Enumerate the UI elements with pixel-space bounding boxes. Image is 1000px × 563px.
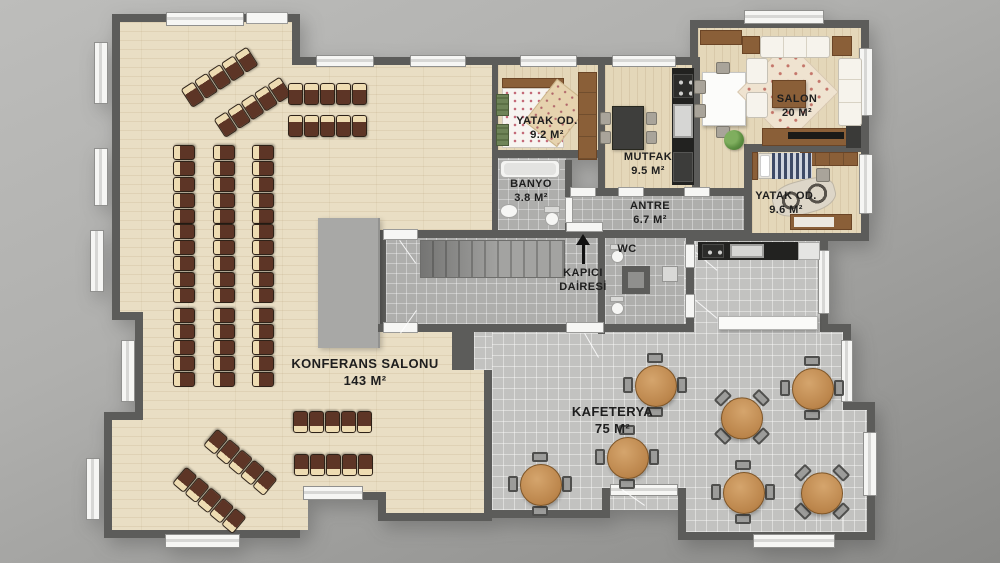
chair	[816, 168, 830, 182]
sideboard	[700, 30, 742, 45]
window	[121, 340, 135, 402]
conference-chair	[288, 115, 303, 137]
label-banyo: BANYO 3.8 M²	[489, 177, 573, 206]
window	[859, 154, 873, 214]
conference-chair	[173, 288, 195, 303]
conference-chair	[173, 177, 195, 192]
conference-chair	[293, 411, 308, 433]
conference-chair-row	[288, 115, 368, 137]
label-konferans: KONFERANS SALONU 143 M²	[285, 356, 445, 390]
cafeteria-table-top	[520, 464, 562, 506]
plant-icon	[724, 130, 744, 150]
cafeteria-chair	[677, 377, 687, 393]
conference-chair	[309, 411, 324, 433]
conference-chair	[173, 356, 195, 371]
conference-chair	[213, 340, 235, 355]
sink-icon	[730, 244, 764, 258]
room-area: 143 M²	[285, 373, 445, 390]
conference-chair	[213, 272, 235, 287]
conference-chair	[213, 356, 235, 371]
conference-stage	[318, 218, 380, 348]
window	[94, 42, 108, 104]
conference-chair	[173, 340, 195, 355]
conference-chair-row	[173, 307, 195, 387]
cafeteria-chair	[508, 476, 518, 492]
conference-chair-row	[173, 223, 195, 303]
door	[685, 294, 695, 318]
room-name: YATAK OD.	[497, 114, 597, 128]
conference-chair	[213, 177, 235, 192]
wall	[452, 332, 474, 370]
conference-chair	[252, 240, 274, 255]
kitchen-chair	[646, 131, 657, 144]
conference-chair	[173, 224, 195, 239]
label-kafeterya: KAFETERYA 75 M²	[540, 404, 685, 438]
conference-chair	[320, 83, 335, 105]
label-mutfak: MUTFAK 9.5 M²	[598, 150, 698, 179]
floor-plan-canvas: KONFERANS SALONU 143 M² KAFETERYA 75 M² …	[0, 0, 1000, 563]
cafeteria-chair	[834, 380, 844, 396]
room-area: 6.7 M²	[600, 213, 700, 227]
label-yatak-od-2: YATAK OD. 9.6 M²	[736, 189, 836, 218]
conference-chair	[252, 256, 274, 271]
nightstand	[496, 94, 509, 116]
room-area: 9.5 M²	[598, 164, 698, 178]
door	[246, 12, 288, 24]
wall	[843, 402, 875, 410]
conference-chair	[213, 224, 235, 239]
dining-chair	[694, 80, 706, 94]
conference-chair	[173, 145, 195, 160]
label-wc: WC	[607, 242, 647, 256]
cabinet	[846, 126, 861, 148]
window	[744, 10, 824, 24]
conference-chair	[173, 161, 195, 176]
cafeteria-chair	[804, 410, 820, 420]
conference-chair	[252, 308, 274, 323]
conference-chair	[213, 209, 235, 224]
conference-chair	[252, 372, 274, 387]
room-area: 3.8 M²	[489, 191, 573, 205]
label-salon: SALON 20 M²	[737, 92, 857, 121]
conference-chair	[252, 161, 274, 176]
conference-chair	[336, 83, 351, 105]
window	[90, 230, 104, 292]
label-yatak-od-1: YATAK OD. 9.2 M²	[497, 114, 597, 143]
room-name: KONFERANS SALONU	[285, 356, 445, 373]
conference-chair	[252, 224, 274, 239]
dresser-top	[794, 217, 834, 227]
cafeteria-table-top	[635, 365, 677, 407]
room-name: YATAK OD.	[736, 189, 836, 203]
cafeteria-chair	[562, 476, 572, 492]
conference-chair-row	[173, 144, 195, 224]
conference-chair	[352, 115, 367, 137]
conference-chair	[252, 288, 274, 303]
kitchen-chair	[600, 112, 611, 125]
cabinet	[798, 242, 820, 260]
room-name: KAPICI	[543, 266, 623, 280]
conference-chair	[213, 193, 235, 208]
conference-chair	[173, 256, 195, 271]
cafeteria-table	[711, 460, 775, 524]
conference-chair-row	[252, 223, 274, 303]
conference-chair-row	[288, 83, 368, 105]
door	[684, 187, 710, 197]
room-area: 20 M²	[737, 106, 857, 120]
conference-chair	[213, 161, 235, 176]
sink-icon	[673, 104, 693, 138]
label-antre: ANTRE 6.7 M²	[600, 199, 700, 228]
washbasin-icon	[662, 266, 678, 282]
cafeteria-table-top	[723, 472, 765, 514]
label-kapici-dairesi: KAPICI DAİRESİ	[543, 266, 623, 295]
bathtub-inner	[504, 163, 556, 175]
room-name: KAFETERYA	[540, 404, 685, 421]
kitchen-chair	[600, 131, 611, 144]
conference-chair	[294, 454, 309, 476]
cafeteria-table-top	[607, 437, 649, 479]
wall	[820, 324, 851, 332]
conference-chair	[213, 288, 235, 303]
dining-chair	[694, 104, 706, 118]
wall	[492, 65, 498, 232]
conference-chair-row	[293, 454, 373, 476]
cafeteria-chair	[765, 484, 775, 500]
conference-chair	[352, 83, 367, 105]
building: KONFERANS SALONU 143 M² KAFETERYA 75 M² …	[0, 0, 1000, 563]
armchair	[746, 58, 768, 84]
wall	[492, 230, 752, 238]
conference-chair	[288, 83, 303, 105]
wall	[602, 488, 610, 518]
window	[520, 55, 577, 67]
conference-chair	[173, 324, 195, 339]
stove-icon	[673, 74, 693, 98]
room-name: SALON	[737, 92, 857, 106]
room-name: DAİRESİ	[543, 280, 623, 294]
room-name: WC	[607, 242, 647, 256]
side-table	[832, 36, 852, 56]
window	[316, 55, 374, 67]
kapici-arrow-icon	[582, 244, 585, 264]
floor-kafeterya	[474, 332, 492, 370]
pillow	[760, 155, 770, 177]
conference-chair	[252, 356, 274, 371]
cafeteria-table	[508, 452, 572, 516]
toilet-bowl	[611, 302, 624, 315]
conference-chair	[213, 372, 235, 387]
window	[303, 486, 363, 500]
cafeteria-chair	[647, 353, 663, 363]
door	[618, 187, 644, 197]
room-area: 75 M²	[540, 421, 685, 438]
room-area: 9.6 M²	[736, 203, 836, 217]
conference-chair-row	[252, 144, 274, 224]
room-name: ANTRE	[600, 199, 700, 213]
cafeteria-table	[780, 356, 844, 420]
conference-chair	[304, 83, 319, 105]
cafeteria-chair	[623, 377, 633, 393]
window	[94, 148, 108, 206]
conference-chair	[252, 145, 274, 160]
cafeteria-chair	[711, 484, 721, 500]
conference-chair-row	[213, 144, 235, 224]
cafeteria-chair	[532, 506, 548, 516]
conference-chair	[173, 240, 195, 255]
conference-chair	[173, 193, 195, 208]
cafeteria-chair	[735, 514, 751, 524]
conference-chair	[173, 272, 195, 287]
cafeteria-chair	[780, 380, 790, 396]
conference-chair	[252, 340, 274, 355]
door	[570, 187, 596, 197]
stove-icon	[702, 244, 724, 258]
conference-chair	[213, 145, 235, 160]
conference-chair-row	[213, 307, 235, 387]
cafeteria-chair	[804, 356, 820, 366]
dining-chair	[716, 62, 730, 74]
conference-chair	[173, 209, 195, 224]
window	[165, 534, 240, 548]
kapici-arrow-head-icon	[576, 234, 590, 245]
cafeteria-chair	[595, 449, 605, 465]
toilet-bowl	[545, 212, 559, 226]
conference-chair-row	[252, 307, 274, 387]
conference-chair	[325, 411, 340, 433]
door	[685, 244, 695, 268]
wall	[690, 20, 698, 65]
washbasin-icon	[500, 204, 518, 218]
side-table	[742, 36, 760, 54]
cafeteria-table-top	[792, 368, 834, 410]
cafeteria-chair	[532, 452, 548, 462]
conference-chair	[336, 115, 351, 137]
cafeteria-chair	[619, 479, 635, 489]
cafeteria-chair	[735, 460, 751, 470]
kitchen-chair	[646, 112, 657, 125]
conference-chair	[173, 308, 195, 323]
sofa	[760, 36, 830, 58]
conference-chair	[357, 411, 372, 433]
conference-chair	[252, 177, 274, 192]
conference-chair	[213, 308, 235, 323]
conference-chair	[326, 454, 341, 476]
cafeteria-chair	[649, 449, 659, 465]
room-name: BANYO	[489, 177, 573, 191]
conference-chair	[213, 256, 235, 271]
conference-chair	[252, 193, 274, 208]
conference-chair	[304, 115, 319, 137]
wall	[378, 324, 694, 332]
window	[86, 458, 100, 520]
door	[566, 222, 603, 232]
conference-chair-row	[213, 223, 235, 303]
conference-chair	[213, 324, 235, 339]
conference-chair	[213, 240, 235, 255]
conference-chair	[341, 411, 356, 433]
door	[383, 229, 418, 240]
window	[410, 55, 466, 67]
tv-icon	[788, 132, 844, 139]
duvet	[772, 153, 812, 179]
conference-chair	[320, 115, 335, 137]
conference-chair-row	[292, 411, 372, 433]
conference-chair	[252, 272, 274, 287]
conference-chair	[342, 454, 357, 476]
window	[863, 432, 877, 496]
conference-chair	[252, 209, 274, 224]
room-name: MUTFAK	[598, 150, 698, 164]
window	[166, 12, 244, 26]
serving-counter	[718, 316, 818, 330]
room-area: 9.2 M²	[497, 128, 597, 142]
conference-chair	[358, 454, 373, 476]
conference-chair	[310, 454, 325, 476]
window	[612, 55, 676, 67]
conference-chair	[173, 372, 195, 387]
door	[566, 322, 604, 333]
kitchen-table	[612, 106, 644, 150]
wc-shaft	[628, 272, 644, 288]
conference-chair	[252, 324, 274, 339]
